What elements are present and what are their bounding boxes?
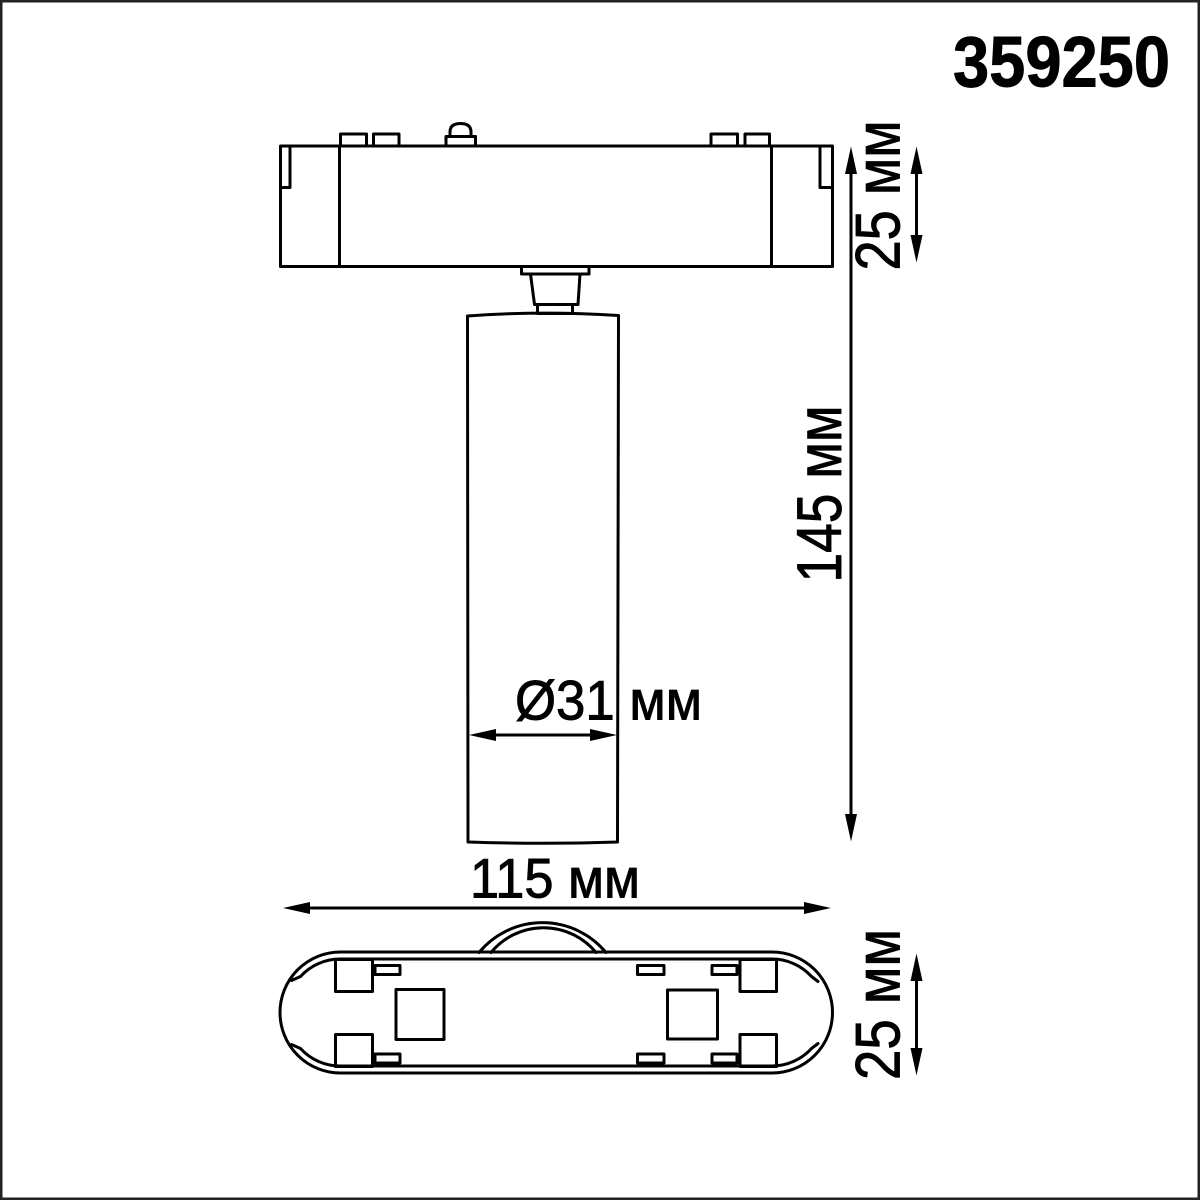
svg-text:115 мм: 115 мм [470, 847, 640, 910]
svg-text:25 мм: 25 мм [844, 121, 914, 271]
svg-text:25 мм: 25 мм [844, 929, 914, 1080]
svg-text:359250: 359250 [953, 24, 1170, 103]
svg-text:145 мм: 145 мм [785, 406, 855, 583]
svg-text:Ø31 мм: Ø31 мм [515, 669, 702, 732]
